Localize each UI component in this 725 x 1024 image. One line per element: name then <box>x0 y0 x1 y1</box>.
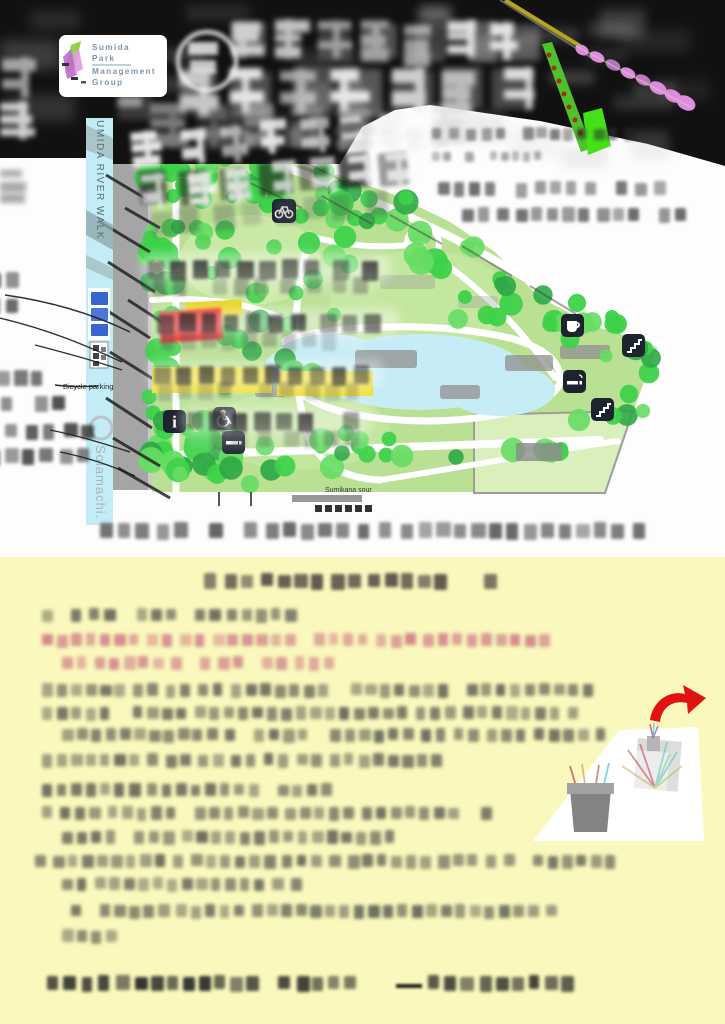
svg-text:i: i <box>172 413 177 432</box>
svg-text:Sumida: Sumida <box>92 43 130 52</box>
svg-text:Group: Group <box>92 78 124 87</box>
svg-text:Management: Management <box>92 67 156 76</box>
svg-text:SUMIDA RIVER WALK: SUMIDA RIVER WALK <box>94 112 105 240</box>
svg-text:Park: Park <box>92 54 115 63</box>
svg-text:Sumikana sour: Sumikana sour <box>325 487 372 494</box>
svg-text:Solamachi.: Solamachi. <box>93 445 108 519</box>
svg-text:Bicycle parking: Bicycle parking <box>63 382 113 391</box>
